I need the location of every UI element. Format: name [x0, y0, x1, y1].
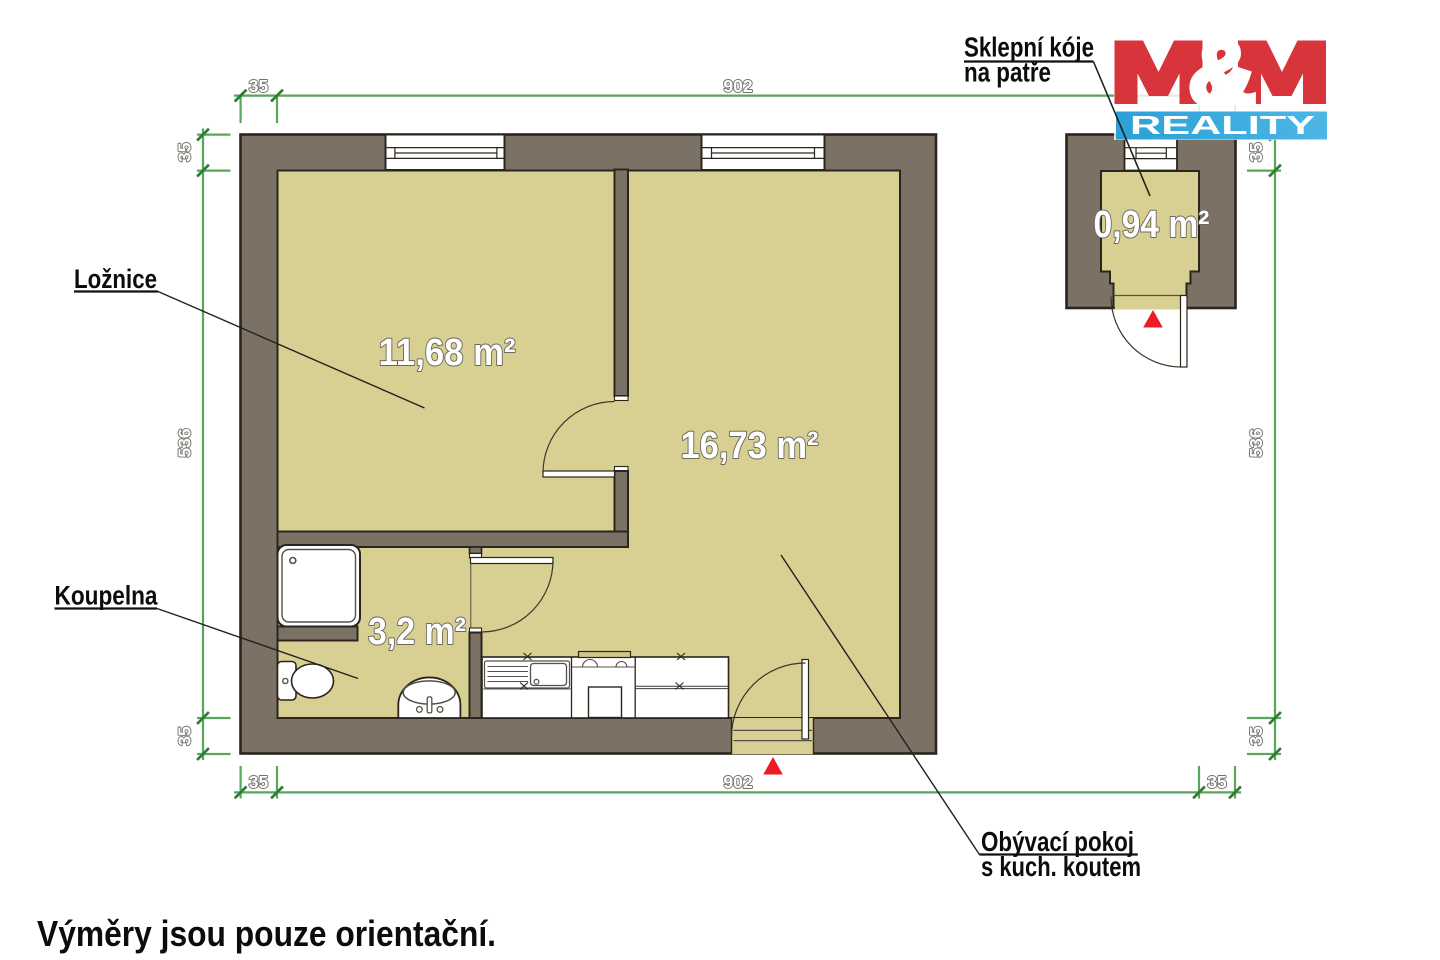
svg-text:35: 35: [175, 726, 195, 746]
svg-text:35: 35: [1207, 772, 1227, 792]
svg-text:3,2 m²: 3,2 m²: [368, 611, 466, 653]
svg-text:Koupelna: Koupelna: [55, 581, 159, 611]
svg-text:0,94 m²: 0,94 m²: [1094, 204, 1210, 246]
svg-text:Ložnice: Ložnice: [74, 264, 157, 294]
svg-text:536: 536: [175, 428, 195, 457]
svg-text:536: 536: [1246, 428, 1266, 457]
svg-text:902: 902: [723, 772, 752, 792]
svg-text:35: 35: [175, 142, 195, 162]
svg-text:35: 35: [1246, 726, 1266, 746]
svg-text:REALITY: REALITY: [1130, 110, 1315, 140]
svg-text:s kuch. koutem: s kuch. koutem: [981, 851, 1141, 882]
svg-text:902: 902: [723, 76, 752, 96]
svg-text:35: 35: [249, 772, 269, 792]
svg-text:35: 35: [249, 76, 269, 96]
svg-text:Výměry jsou pouze orientační.: Výměry jsou pouze orientační.: [37, 913, 496, 954]
svg-text:16,73 m²: 16,73 m²: [681, 425, 819, 467]
svg-text:35: 35: [1246, 142, 1266, 162]
svg-text:11,68 m²: 11,68 m²: [379, 332, 516, 374]
